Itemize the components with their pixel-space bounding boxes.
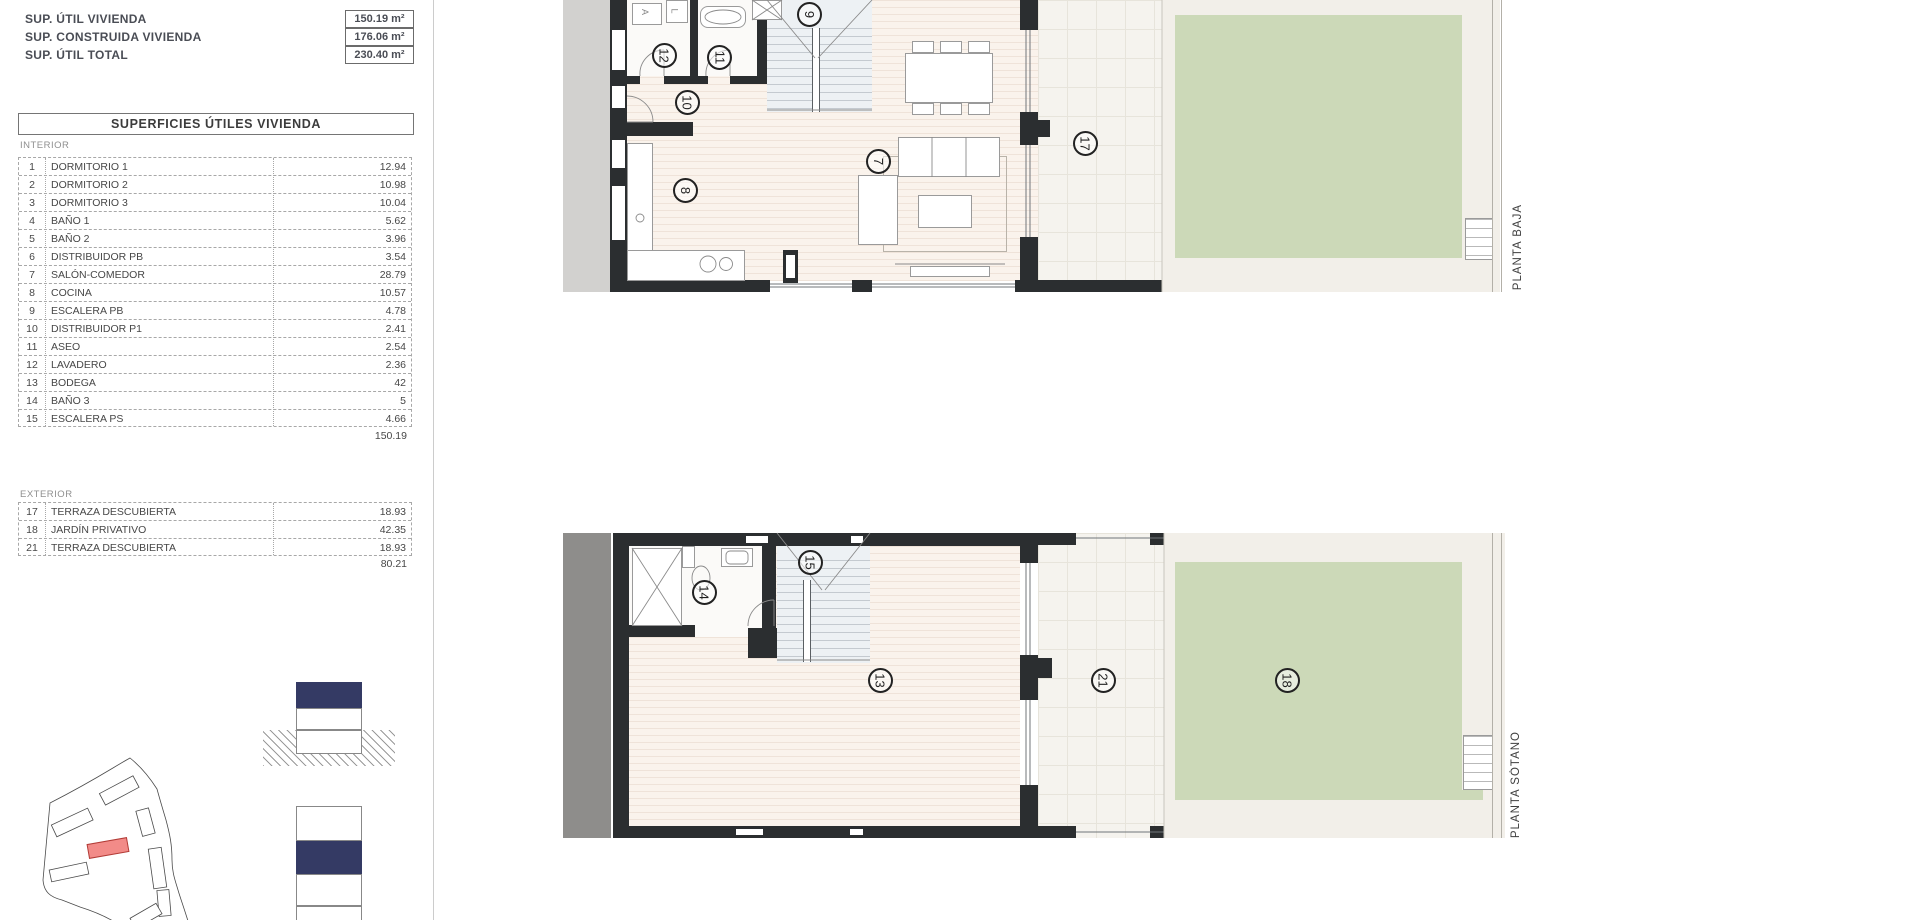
room-number-distribuidor: 10 [675, 90, 700, 115]
locator-highlight-block [296, 682, 362, 708]
row-num: 2 [19, 179, 45, 191]
table-row: 6DISTRIBUIDOR PB3.54 [19, 248, 411, 266]
row-name: LAVADERO [45, 359, 281, 371]
row-num: 17 [19, 506, 45, 518]
row-name: BAÑO 3 [45, 395, 281, 407]
exterior-area-table: 17TERRAZA DESCUBIERTA18.93 18JARDÍN PRIV… [18, 502, 412, 556]
summary-value: 150.19 m² [345, 10, 414, 28]
row-num: 14 [19, 395, 45, 407]
row-value: 18.93 [281, 542, 411, 554]
locator-block [296, 708, 362, 730]
row-num: 15 [19, 413, 45, 425]
row-value: 18.93 [281, 506, 411, 518]
table-row: 11ASEO2.54 [19, 338, 411, 356]
table-row: 13BODEGA42 [19, 374, 411, 392]
row-num: 10 [19, 323, 45, 335]
row-name: ESCALERA PB [45, 305, 281, 317]
row-name: BAÑO 2 [45, 233, 281, 245]
room-number-aseo: 11 [707, 45, 732, 70]
panel-divider [433, 0, 434, 920]
table-row: 10DISTRIBUIDOR P12.41 [19, 320, 411, 338]
row-num: 11 [19, 341, 45, 353]
row-name: BAÑO 1 [45, 215, 281, 227]
room-number-bodega: 13 [868, 668, 893, 693]
site-plan [20, 750, 235, 920]
row-name: COCINA [45, 287, 281, 299]
row-name: DORMITORIO 1 [45, 161, 281, 173]
interior-section-label: INTERIOR [20, 140, 69, 151]
table-column-divider [273, 158, 274, 426]
table-row: 2DORMITORIO 210.98 [19, 176, 411, 194]
plan-label-wrap: PLANTA SÓTANO [1500, 735, 1532, 838]
row-value: 5 [281, 395, 411, 407]
table-row: 14BAÑO 35 [19, 392, 411, 410]
room-number-escalera: 9 [797, 2, 822, 27]
locator-block [296, 906, 362, 920]
row-value: 10.57 [281, 287, 411, 299]
room-number-salon: 7 [866, 149, 891, 174]
row-value: 3.96 [281, 233, 411, 245]
table-row: 3DORMITORIO 310.04 [19, 194, 411, 212]
summary-value: 230.40 m² [345, 46, 414, 64]
row-num: 5 [19, 233, 45, 245]
table-row: 9ESCALERA PB4.78 [19, 302, 411, 320]
table-column-divider [45, 503, 46, 555]
table-row: 5BAÑO 23.96 [19, 230, 411, 248]
table-row: 4BAÑO 15.62 [19, 212, 411, 230]
plan-baja-linework [560, 0, 1545, 292]
plan-baja-label: PLANTA BAJA [1512, 204, 1524, 290]
row-value: 28.79 [281, 269, 411, 281]
row-name: DISTRIBUIDOR P1 [45, 323, 281, 335]
row-name: SALÓN-COMEDOR [45, 269, 281, 281]
row-name: DORMITORIO 2 [45, 179, 281, 191]
plan-sotano-label: PLANTA SÓTANO [1510, 731, 1522, 838]
row-value: 10.04 [281, 197, 411, 209]
row-name: BODEGA [45, 377, 281, 389]
interior-area-table: 1DORMITORIO 112.94 2DORMITORIO 210.98 3D… [18, 157, 412, 427]
row-value: 4.78 [281, 305, 411, 317]
row-num: 1 [19, 161, 45, 173]
room-number-lavadero: 12 [652, 43, 677, 68]
room-number-jardin: 18 [1275, 668, 1300, 693]
table-row: 8COCINA10.57 [19, 284, 411, 302]
row-value: 12.94 [281, 161, 411, 173]
row-value: 2.36 [281, 359, 411, 371]
row-num: 9 [19, 305, 45, 317]
floor-plan-planta-baja: A L [560, 0, 1545, 292]
floor-plan-planta-sotano: 15 14 13 21 18 PLANTA SÓTANO [560, 530, 1545, 840]
locator-block [296, 806, 362, 841]
table-row: 1DORMITORIO 112.94 [19, 158, 411, 176]
row-name: DISTRIBUIDOR PB [45, 251, 281, 263]
room-number-terraza-ps: 21 [1091, 668, 1116, 693]
row-name: JARDÍN PRIVATIVO [45, 524, 281, 536]
row-name: ESCALERA PS [45, 413, 281, 425]
table-row: 17TERRAZA DESCUBIERTA18.93 [19, 503, 411, 521]
row-num: 21 [19, 542, 45, 554]
row-value: 2.54 [281, 341, 411, 353]
table-title: SUPERFICIES ÚTILES VIVIENDA [18, 113, 414, 135]
row-num: 6 [19, 251, 45, 263]
row-num: 18 [19, 524, 45, 536]
table-row: 12LAVADERO2.36 [19, 356, 411, 374]
table-column-divider [45, 158, 46, 426]
row-name: TERRAZA DESCUBIERTA [45, 506, 281, 518]
plan-sheet: SUP. ÚTIL VIVIENDA 150.19 m² SUP. CONSTR… [0, 0, 1920, 920]
row-value: 42 [281, 377, 411, 389]
table-row: 21TERRAZA DESCUBIERTA18.93 [19, 539, 411, 557]
row-num: 8 [19, 287, 45, 299]
plan-label-wrap: PLANTA BAJA [1502, 185, 1534, 290]
room-number-bano3: 14 [692, 580, 717, 605]
summary-label: SUP. CONSTRUIDA VIVIENDA [25, 30, 202, 44]
row-num: 12 [19, 359, 45, 371]
row-value: 4.66 [281, 413, 411, 425]
row-name: TERRAZA DESCUBIERTA [45, 542, 281, 554]
summary-label: SUP. ÚTIL VIVIENDA [25, 12, 147, 26]
interior-total: 150.19 [297, 430, 407, 442]
table-row: 15ESCALERA PS4.66 [19, 410, 411, 428]
row-name: DORMITORIO 3 [45, 197, 281, 209]
room-number-terraza: 17 [1073, 131, 1098, 156]
row-num: 3 [19, 197, 45, 209]
exterior-total: 80.21 [297, 558, 407, 570]
exterior-section-label: EXTERIOR [20, 489, 73, 500]
row-value: 5.62 [281, 215, 411, 227]
row-num: 13 [19, 377, 45, 389]
row-num: 7 [19, 269, 45, 281]
locator-basement-block [296, 730, 362, 754]
row-value: 2.41 [281, 323, 411, 335]
room-number-escalera-ps: 15 [798, 550, 823, 575]
plan-sotano-linework [560, 530, 1545, 840]
locator-highlight-block [296, 841, 362, 874]
table-row: 7SALÓN-COMEDOR28.79 [19, 266, 411, 284]
summary-value: 176.06 m² [345, 28, 414, 46]
row-value: 42.35 [281, 524, 411, 536]
row-num: 4 [19, 215, 45, 227]
row-value: 10.98 [281, 179, 411, 191]
row-value: 3.54 [281, 251, 411, 263]
row-name: ASEO [45, 341, 281, 353]
table-column-divider [273, 503, 274, 555]
summary-label: SUP. ÚTIL TOTAL [25, 48, 128, 62]
room-number-cocina: 8 [673, 178, 698, 203]
table-row: 18JARDÍN PRIVATIVO42.35 [19, 521, 411, 539]
locator-block [296, 874, 362, 906]
